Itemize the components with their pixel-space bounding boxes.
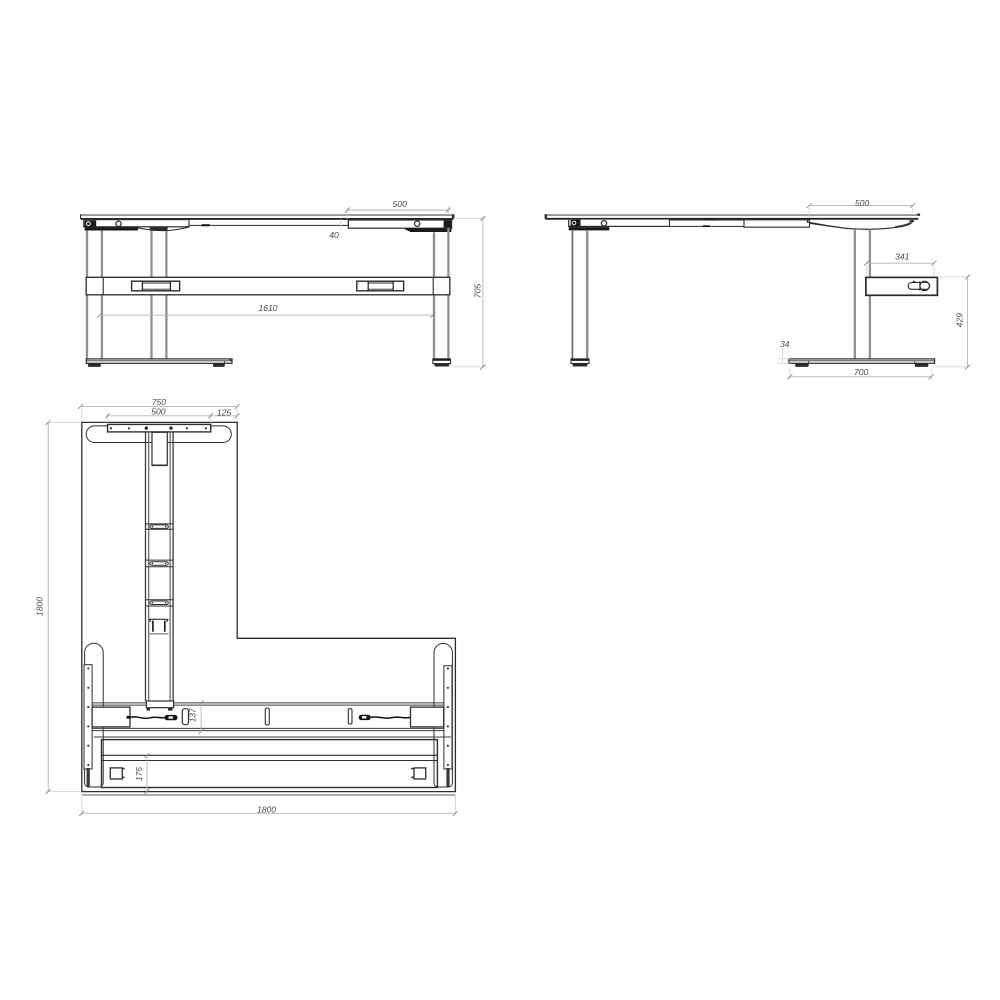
svg-text:700: 700	[854, 367, 869, 377]
svg-text:1800: 1800	[257, 804, 276, 814]
svg-text:705: 705	[472, 284, 482, 299]
svg-text:40: 40	[329, 230, 339, 240]
svg-text:429: 429	[954, 313, 964, 328]
svg-text:500: 500	[151, 407, 166, 417]
svg-text:137: 137	[188, 708, 198, 722]
svg-text:341: 341	[895, 252, 910, 262]
svg-text:1800: 1800	[35, 597, 45, 616]
svg-text:125: 125	[217, 408, 232, 418]
svg-text:750: 750	[152, 397, 167, 407]
svg-text:500: 500	[855, 198, 870, 208]
svg-text:500: 500	[393, 199, 408, 209]
svg-text:34: 34	[780, 339, 790, 349]
svg-text:175: 175	[134, 767, 144, 781]
svg-text:1610: 1610	[258, 303, 277, 313]
